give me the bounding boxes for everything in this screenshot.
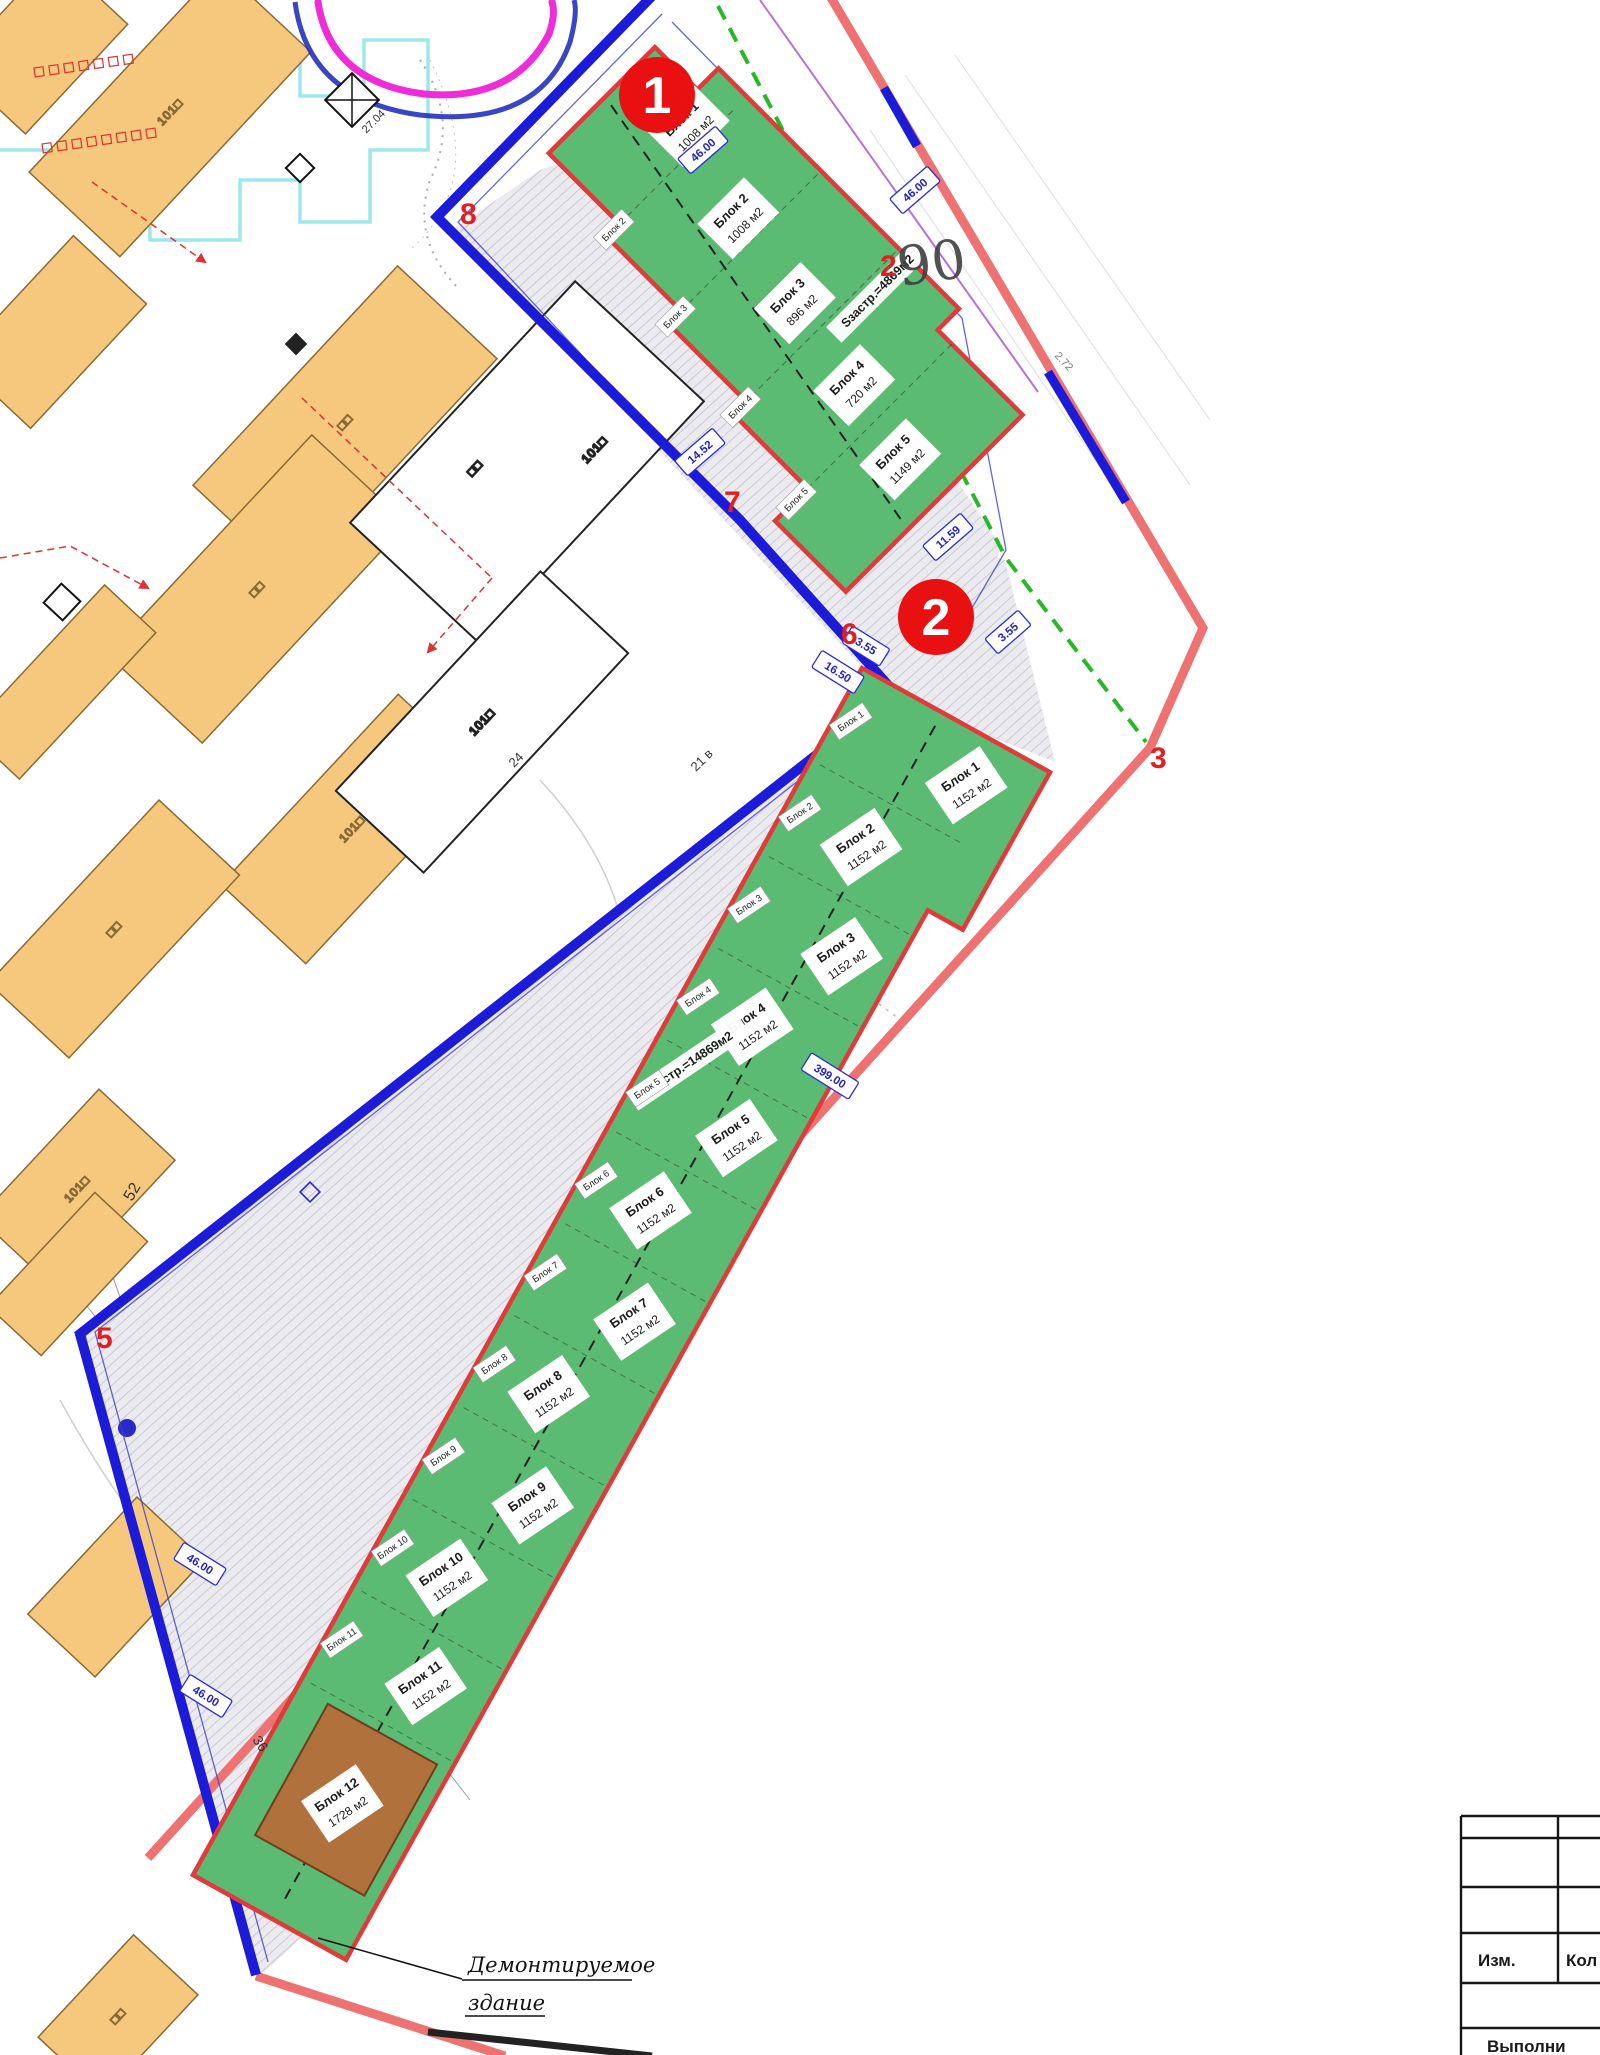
demolition-note-line1: Демонтируемое: [467, 1953, 655, 1977]
boundary-vertex-label: 7: [724, 486, 741, 519]
title-block-col-kol: Кол: [1566, 1951, 1597, 1970]
boundary-vertex-label: 6: [841, 618, 858, 651]
title-block-col-izm: Изм.: [1478, 1951, 1516, 1970]
boundary-vertex-label: 3: [1150, 742, 1167, 775]
boundary-vertex-label: 2: [880, 250, 897, 283]
plot-number: 90: [893, 227, 970, 299]
site-plan-drawing: 101□ □□ □□ 101□ □□ 101□ □□: [0, 0, 1600, 2055]
title-block-bottom-row: Выполни: [1487, 2037, 1566, 2055]
marker-1-badge[interactable]: 1: [619, 57, 695, 133]
marker-2-number: 2: [922, 589, 951, 647]
boundary-vertex-label: 5: [96, 1322, 113, 1355]
boundary-vertex-label: 8: [460, 198, 477, 231]
demolition-note-line2: здание: [468, 1991, 545, 2015]
marker-2-badge[interactable]: 2: [898, 579, 974, 655]
marker-1-number: 1: [643, 67, 672, 125]
title-block: Изм. Кол Выполни: [1455, 1814, 1600, 2055]
